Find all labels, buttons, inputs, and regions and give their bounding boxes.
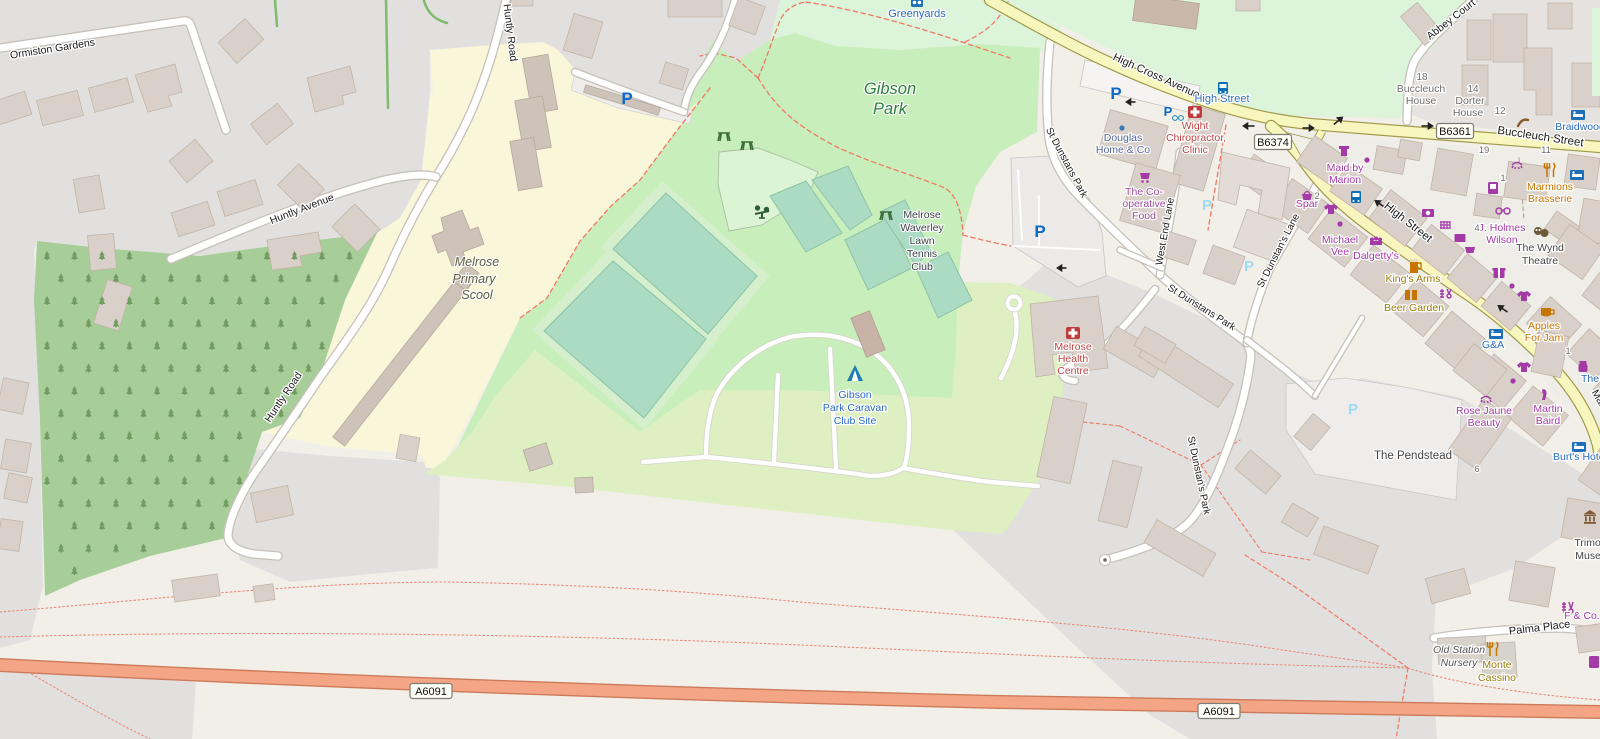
svg-text:Park: Park — [873, 100, 908, 118]
svg-text:Wilson: Wilson — [1486, 234, 1518, 246]
svg-text:Park Caravan: Park Caravan — [823, 402, 887, 414]
svg-text:Apples: Apples — [1528, 320, 1560, 332]
svg-text:Clinic: Clinic — [1182, 144, 1208, 156]
svg-text:B6374: B6374 — [1257, 137, 1289, 149]
svg-text:1: 1 — [1500, 173, 1505, 184]
svg-text:P: P — [1348, 401, 1358, 418]
svg-text:Lawn: Lawn — [909, 235, 934, 247]
svg-text:Marmions: Marmions — [1527, 181, 1573, 193]
svg-text:Beauty: Beauty — [1468, 417, 1501, 429]
svg-text:G&A: G&A — [1482, 339, 1504, 351]
svg-text:Martin: Martin — [1533, 403, 1562, 415]
svg-text:6: 6 — [1474, 464, 1479, 475]
svg-text:Primary: Primary — [452, 272, 496, 286]
svg-text:King's Arms: King's Arms — [1385, 273, 1440, 285]
svg-text:14: 14 — [1467, 84, 1479, 95]
svg-text:operative: operative — [1122, 198, 1165, 210]
svg-text:Buccleuch: Buccleuch — [1397, 83, 1446, 95]
svg-text:P: P — [1034, 222, 1045, 241]
svg-text:Museu: Museu — [1575, 550, 1600, 562]
svg-text:Scool: Scool — [461, 288, 493, 302]
svg-text:Melrose: Melrose — [1054, 341, 1092, 353]
svg-text:1: 1 — [1565, 346, 1570, 357]
svg-text:P: P — [1110, 84, 1121, 103]
svg-text:P: P — [1244, 258, 1254, 275]
svg-text:Club Site: Club Site — [834, 415, 877, 427]
svg-text:Trimont: Trimont — [1574, 537, 1600, 549]
svg-text:For Jam: For Jam — [1525, 332, 1564, 344]
svg-text:The Co-: The Co- — [1125, 186, 1163, 198]
svg-text:Marion: Marion — [1329, 174, 1361, 186]
svg-text:Maid by: Maid by — [1327, 162, 1365, 174]
svg-text:High Street: High Street — [1194, 93, 1249, 105]
svg-text:The: The — [1581, 373, 1599, 385]
svg-text:Vee: Vee — [1331, 246, 1349, 258]
svg-text:Michael: Michael — [1322, 234, 1358, 246]
svg-text:P: P — [1164, 104, 1173, 119]
svg-text:Braidwood: Braidwood — [1555, 121, 1600, 133]
svg-text:Baird: Baird — [1536, 415, 1561, 427]
svg-text:11: 11 — [1541, 145, 1551, 156]
svg-text:18: 18 — [1416, 72, 1428, 83]
svg-text:Melrose: Melrose — [903, 209, 941, 221]
svg-text:4: 4 — [1474, 223, 1479, 234]
svg-text:Monte: Monte — [1482, 659, 1511, 671]
svg-text:The Wynd: The Wynd — [1516, 242, 1564, 254]
svg-text:A6091: A6091 — [415, 686, 447, 698]
svg-text:Gibson: Gibson — [838, 389, 871, 401]
svg-text:Dalgetty's: Dalgetty's — [1353, 250, 1399, 262]
svg-text:J. Holmes: J. Holmes — [1479, 222, 1526, 234]
svg-text:House: House — [1406, 95, 1437, 107]
svg-text:Health: Health — [1058, 353, 1089, 365]
svg-text:Greenyards: Greenyards — [888, 8, 946, 20]
svg-text:Chiropractor,: Chiropractor, — [1166, 132, 1226, 144]
svg-text:Douglas: Douglas — [1104, 132, 1143, 144]
svg-text:Waverley: Waverley — [900, 222, 944, 234]
svg-text:Club: Club — [911, 261, 933, 273]
svg-text:B6361: B6361 — [1439, 126, 1471, 138]
svg-text:P: P — [621, 89, 632, 108]
svg-text:Wight: Wight — [1182, 120, 1209, 132]
svg-text:2: 2 — [1314, 191, 1319, 202]
svg-text:A6091: A6091 — [1203, 706, 1235, 718]
svg-text:Cassino: Cassino — [1478, 672, 1516, 684]
svg-text:Gibson: Gibson — [864, 80, 916, 98]
svg-text:Nursery: Nursery — [1441, 657, 1479, 669]
svg-text:F & Co.: F & Co. — [1564, 610, 1600, 622]
svg-text:Old Station: Old Station — [1433, 644, 1485, 656]
svg-text:Dorter: Dorter — [1455, 95, 1485, 107]
svg-text:Brasserie: Brasserie — [1528, 193, 1573, 205]
svg-text:The Pendstead: The Pendstead — [1374, 450, 1452, 462]
svg-text:Tennis: Tennis — [907, 248, 937, 260]
svg-text:Food: Food — [1132, 210, 1156, 222]
svg-text:Melrose: Melrose — [455, 255, 500, 269]
svg-text:P: P — [1202, 197, 1212, 214]
svg-text:12: 12 — [1494, 106, 1506, 117]
svg-text:House: House — [1453, 107, 1484, 119]
svg-text:Rose Jaune: Rose Jaune — [1456, 405, 1512, 417]
svg-text:19: 19 — [1479, 145, 1490, 156]
svg-text:Home & Co: Home & Co — [1096, 144, 1150, 156]
svg-text:Centre: Centre — [1057, 365, 1089, 377]
svg-text:Beer Garden: Beer Garden — [1384, 302, 1444, 314]
svg-text:Burt's Hotel: Burt's Hotel — [1553, 451, 1600, 463]
svg-text:Theatre: Theatre — [1522, 255, 1558, 267]
